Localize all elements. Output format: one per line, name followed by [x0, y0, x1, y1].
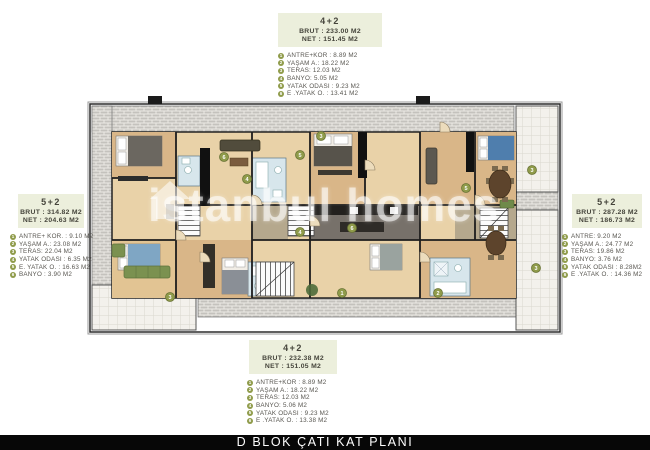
room-list-item: 2YAŞAM A.: 24.77 M2 — [562, 241, 648, 249]
svg-text:3: 3 — [319, 134, 322, 140]
room-label: ANTRE+KOR : 8.89 M2 — [256, 379, 326, 386]
unit-card-right: 5+2 BRUT : 287.28 M2 NET : 186.73 M2 1AN… — [558, 194, 648, 279]
room-label: YATAK ODASI : 9.23 M2 — [256, 410, 329, 417]
room-label: BANYO: 3.76 M2 — [571, 256, 622, 263]
room-number-marker: 4 — [243, 175, 252, 184]
room-list: 1ANTRE+KOR : 8.89 M2 2YAŞAM A.: 18.22 M2… — [278, 52, 382, 98]
room-list: 1ANTRE+KOR : 8.89 M2 2YAŞAM A.: 18.22 M2… — [247, 379, 351, 425]
room-label: YATAK ODASI : 8.28M2 — [571, 264, 642, 271]
room-list-item: 4BANYO: 3.76 M2 — [562, 256, 648, 264]
svg-text:3: 3 — [530, 168, 533, 174]
plant-icon — [306, 284, 318, 296]
room-number-marker: 6 — [220, 153, 229, 162]
room-number-badge: 5 — [247, 410, 253, 416]
room-list-item: 5YATAK ODASI : 9.23 M2 — [247, 409, 351, 417]
svg-text:6: 6 — [222, 155, 225, 161]
unit-header: 5+2 BRUT : 314.82 M2 NET : 204.63 M2 — [18, 194, 84, 228]
room-number-badge: 4 — [562, 257, 568, 263]
wardrobe-icon — [203, 244, 215, 288]
room-number-badge: 6 — [10, 272, 16, 278]
room-list-item: 1ANTRE+KOR : 8.89 M2 — [278, 52, 382, 60]
unit-brut: BRUT : 287.28 M2 — [574, 209, 640, 216]
unit-net: NET : 151.45 M2 — [280, 36, 380, 43]
room-number-badge: 3 — [10, 249, 16, 255]
room-label: E .YATAK O. : 13.38 M2 — [256, 417, 327, 424]
svg-text:5: 5 — [298, 153, 301, 159]
room-list-item: 2YAŞAM A.: 18.22 M2 — [278, 60, 382, 68]
room-number-marker: 3 — [166, 293, 175, 302]
room-number-badge: 3 — [562, 249, 568, 255]
svg-text:3: 3 — [534, 266, 537, 272]
room-label: ANTRE+KOR : 8.89 M2 — [287, 52, 357, 59]
room-number-badge: 5 — [10, 264, 16, 270]
room-list-item: 4YATAK ODASI : 6.35 M2 — [10, 256, 94, 264]
room-list-item: 1ANTRE+ KOR. : 9.10 M2 — [10, 233, 94, 241]
room-number-badge: 5 — [278, 83, 284, 89]
room-number-badge: 4 — [247, 403, 253, 409]
unit-brut: BRUT : 233.00 M2 — [280, 28, 380, 35]
room-list-item: 1ANTRE+KOR : 8.89 M2 — [247, 379, 351, 387]
room-number-badge: 1 — [10, 234, 16, 240]
bed-icon — [478, 136, 514, 160]
room-label: TERAS: 19.86 M2 — [571, 248, 625, 255]
room-list-item: 5YATAK ODASI : 9.23 M2 — [278, 82, 382, 90]
room-list-item: 6BANYO : 3.90 M2 — [10, 271, 94, 279]
room-label: YAŞAM A.: 18.22 M2 — [287, 60, 349, 67]
room-label: YAŞAM A.: 18.22 M2 — [256, 387, 318, 394]
bed-icon — [222, 258, 248, 294]
room-label: BANYO: 5.06 M2 — [256, 402, 307, 409]
room-number-marker: 6 — [348, 224, 357, 233]
room-label: E. YATAK O. : 16.63 M2 — [19, 264, 90, 271]
room-list-item: 5YATAK ODASI : 8.28M2 — [562, 263, 648, 271]
room-label: TERAS: 22.04 M2 — [19, 248, 73, 255]
room-list-item: 6E .YATAK O. : 13.38 M2 — [247, 417, 351, 425]
unit-brut: BRUT : 232.38 M2 — [251, 355, 335, 362]
tv-unit-icon — [118, 176, 148, 181]
room-number-marker: 3 — [317, 132, 326, 141]
svg-text:6: 6 — [350, 226, 353, 232]
room-list-item: 4BANYO: 5.06 M2 — [247, 402, 351, 410]
room-label: E .YATAK O. : 13.41 M2 — [287, 90, 358, 97]
room-number-badge: 3 — [278, 68, 284, 74]
unit-card-top: 4+2 BRUT : 233.00 M2 NET : 151.45 M2 1AN… — [278, 13, 382, 98]
room-number-badge: 5 — [562, 264, 568, 270]
unit-net: NET : 151.05 M2 — [251, 363, 335, 370]
room-number-badge: 2 — [562, 241, 568, 247]
bed-icon — [370, 244, 402, 270]
room-number-badge: 2 — [247, 387, 253, 393]
room-list-item: 6E .YATAK O. : 13.41 M2 — [278, 90, 382, 98]
room-number-badge: 3 — [247, 395, 253, 401]
page: 3 3 3 3 6 4 5 5 6 4 1 2 istanbul homes 4… — [0, 0, 650, 450]
room-label: E .YATAK O. : 14.36 M2 — [571, 271, 642, 278]
room-number-marker: 1 — [338, 289, 347, 298]
room-number-marker: 2 — [434, 289, 443, 298]
room-list-item: 5E. YATAK O. : 16.63 M2 — [10, 263, 94, 271]
room-list-item: 2YAŞAM A.: 23.08 M2 — [10, 241, 94, 249]
svg-text:2: 2 — [436, 291, 439, 297]
room-label: ANTRE: 9.20 M2 — [571, 233, 621, 240]
unit-card-bottom: 4+2 BRUT : 232.38 M2 NET : 151.05 M2 1AN… — [247, 340, 351, 425]
svg-text:5: 5 — [464, 186, 467, 192]
unit-type-label: 4+2 — [251, 343, 335, 353]
unit-header: 5+2 BRUT : 287.28 M2 NET : 186.73 M2 — [572, 194, 642, 228]
room-label: YAŞAM A.: 24.77 M2 — [571, 241, 633, 248]
room-number-badge: 4 — [278, 76, 284, 82]
room-number-marker: 3 — [532, 264, 541, 273]
unit-type-label: 5+2 — [20, 197, 82, 207]
unit-type-label: 4+2 — [280, 16, 380, 26]
room-label: YATAK ODASI : 9.23 M2 — [287, 83, 360, 90]
svg-text:3: 3 — [168, 295, 171, 301]
unit-net: NET : 186.73 M2 — [574, 217, 640, 224]
unit-card-left: 5+2 BRUT : 314.82 M2 NET : 204.63 M2 1AN… — [10, 194, 94, 279]
room-list-item: 3TERAS: 12.03 M2 — [247, 394, 351, 402]
room-label: BANYO : 3.90 M2 — [19, 271, 72, 278]
room-number-badge: 2 — [10, 241, 16, 247]
unit-header: 4+2 BRUT : 232.38 M2 NET : 151.05 M2 — [249, 340, 337, 374]
room-number-marker: 5 — [462, 184, 471, 193]
room-label: YATAK ODASI : 6.35 M2 — [19, 256, 92, 263]
room-list-item: 6E .YATAK O. : 14.36 M2 — [562, 271, 648, 279]
room-number-badge: 2 — [278, 60, 284, 66]
room-label: ANTRE+ KOR. : 9.10 M2 — [19, 233, 93, 240]
chimney-icon — [148, 96, 162, 104]
room-label: YAŞAM A.: 23.08 M2 — [19, 241, 81, 248]
tv-unit-icon — [318, 170, 352, 175]
room-number-badge: 4 — [10, 257, 16, 263]
room-list-item: 3TERAS: 19.86 M2 — [562, 248, 648, 256]
unit-net: NET : 204.63 M2 — [20, 217, 82, 224]
room-list-item: 4BANYO: 5.05 M2 — [278, 75, 382, 83]
room-list: 1ANTRE+ KOR. : 9.10 M2 2YAŞAM A.: 23.08 … — [10, 233, 94, 279]
room-number-marker: 3 — [528, 166, 537, 175]
svg-text:1: 1 — [340, 291, 343, 297]
unit-type-label: 5+2 — [574, 197, 640, 207]
room-list: 1ANTRE: 9.20 M2 2YAŞAM A.: 24.77 M2 3TER… — [558, 233, 648, 279]
room-label: BANYO: 5.05 M2 — [287, 75, 338, 82]
unit-header: 4+2 BRUT : 233.00 M2 NET : 151.45 M2 — [278, 13, 382, 47]
room-number-badge: 1 — [247, 380, 253, 386]
room-number-badge: 6 — [562, 272, 568, 278]
room-list-item: 3TERAS: 22.04 M2 — [10, 248, 94, 256]
room-list-item: 3TERAS: 12.03 M2 — [278, 67, 382, 75]
room-label: TERAS: 12.03 M2 — [256, 394, 310, 401]
room-number-marker: 5 — [296, 151, 305, 160]
room-label: TERAS: 12.03 M2 — [287, 67, 341, 74]
room-list-item: 2YAŞAM A.: 18.22 M2 — [247, 387, 351, 395]
chimney-icon — [416, 96, 430, 104]
room-number-badge: 6 — [278, 91, 284, 97]
room-number-badge: 6 — [247, 418, 253, 424]
room-number-badge: 1 — [562, 234, 568, 240]
room-number-marker: 4 — [296, 228, 305, 237]
bed-icon — [116, 136, 162, 166]
room-number-badge: 1 — [278, 53, 284, 59]
room-list-item: 1ANTRE: 9.20 M2 — [562, 233, 648, 241]
unit-brut: BRUT : 314.82 M2 — [20, 209, 82, 216]
plan-title-bar: D BLOK ÇATI KAT PLANI — [0, 435, 650, 450]
